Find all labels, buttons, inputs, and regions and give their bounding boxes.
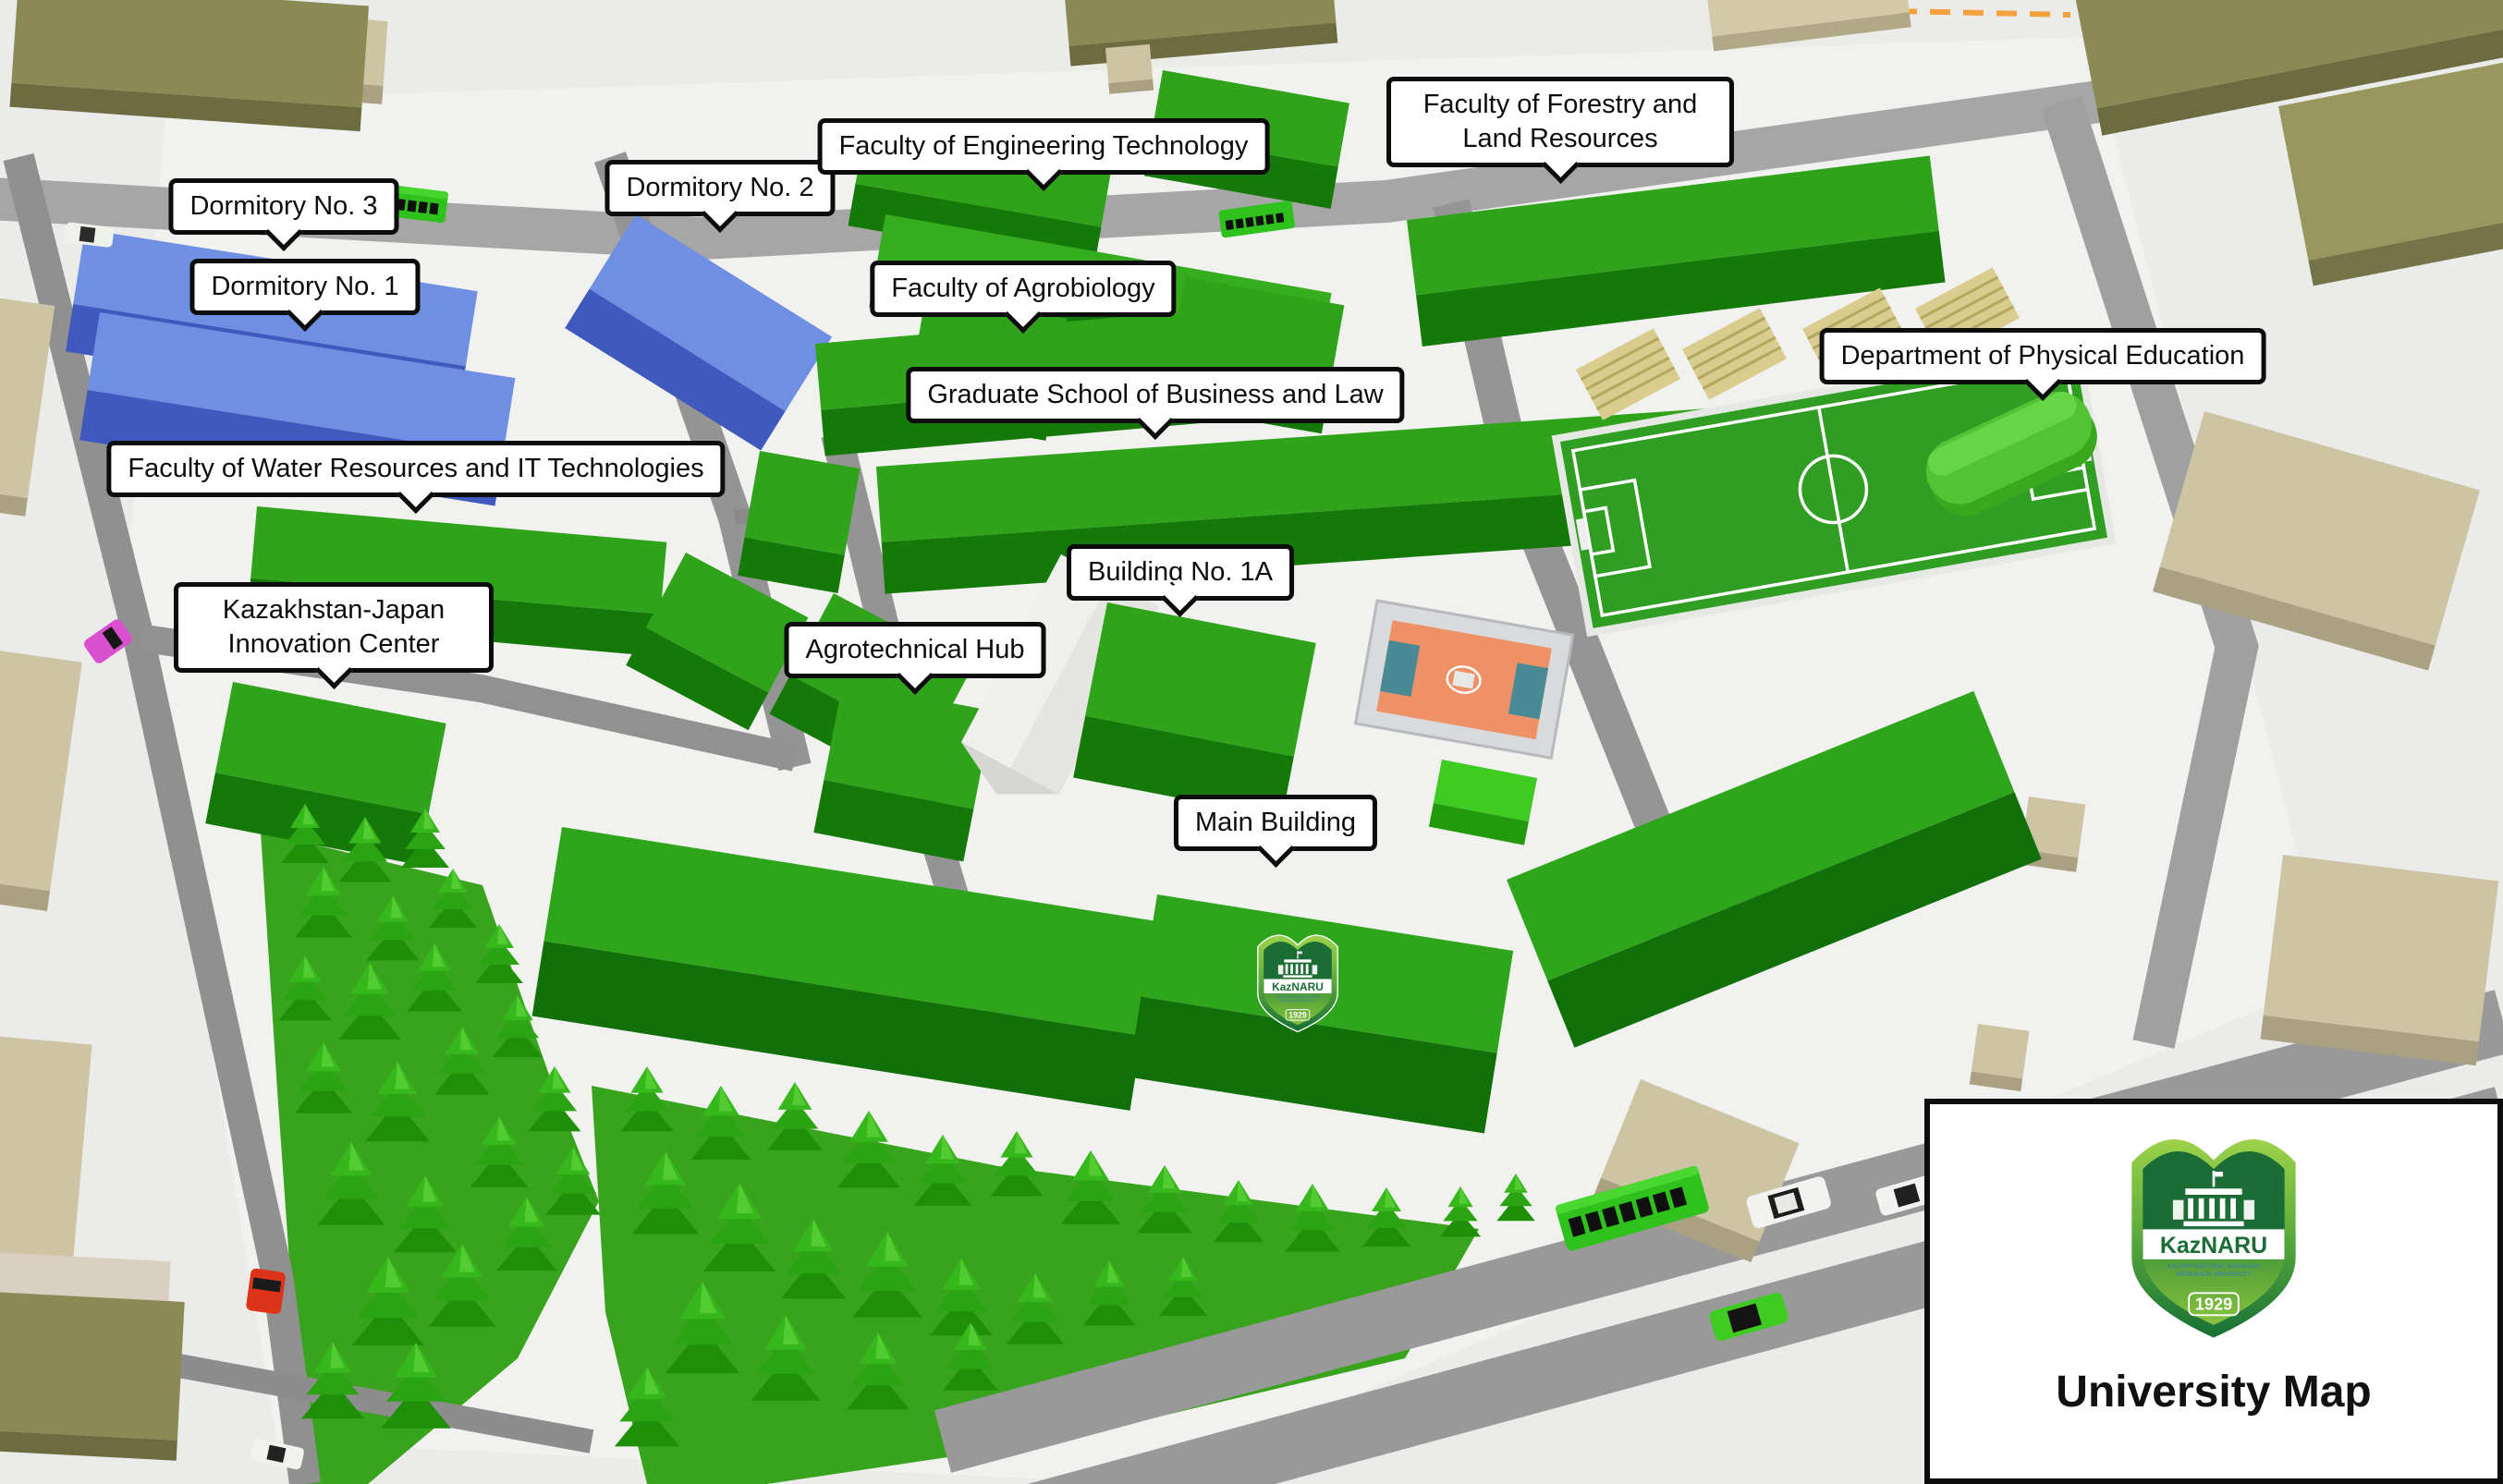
label-dept-physical-education: Department of Physical Education: [1820, 328, 2266, 395]
label-faculty-forestry: Faculty of Forestry and Land Resources: [1386, 77, 1734, 178]
legend-title: University Map: [2056, 1367, 2371, 1417]
label-kazakh-japan-center: Kazakhstan-Japan Innovation Center: [174, 582, 494, 684]
legend-panel: University Map: [1924, 1099, 2503, 1484]
label-main-building: Main Building: [1174, 795, 1377, 862]
label-graduate-school: Graduate School of Business and Law: [906, 367, 1404, 434]
label-dormitory-2: Dormitory No. 2: [604, 160, 835, 227]
label-dormitory-3: Dormitory No. 3: [168, 178, 398, 246]
label-building-1a: Building No. 1A: [1067, 544, 1294, 612]
car-red: [246, 1268, 287, 1315]
agrotechnical-hub-building: [813, 682, 993, 861]
university-logo: [2125, 1130, 2302, 1343]
label-faculty-water-it: Faculty of Water Resources and IT Techno…: [106, 441, 725, 508]
label-faculty-agrobiology: Faculty of Agrobiology: [870, 261, 1176, 328]
label-agrotechnical-hub: Agrotechnical Hub: [785, 622, 1046, 689]
label-faculty-engineering: Faculty of Engineering Technology: [818, 118, 1270, 186]
label-dormitory-1: Dormitory No. 1: [189, 259, 420, 326]
